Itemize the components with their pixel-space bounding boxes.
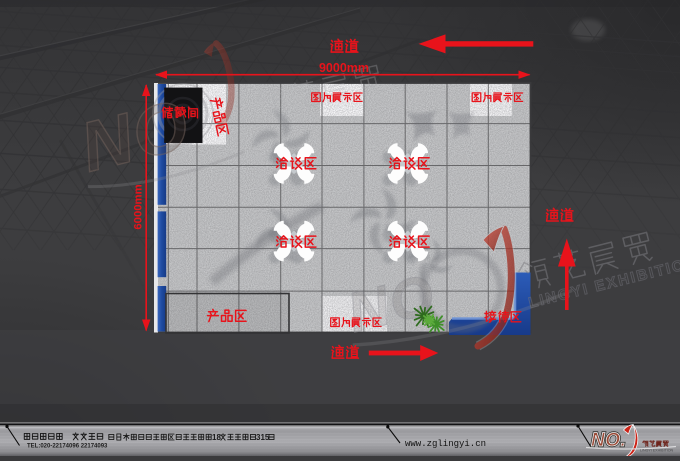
svg-text:18: 18 <box>212 433 221 442</box>
svg-text:LINGYI EXHIBITION: LINGYI EXHIBITION <box>640 449 674 453</box>
svg-text:6000mm: 6000mm <box>133 184 145 229</box>
svg-text:TEL:020-22174096 22174093: TEL:020-22174096 22174093 <box>27 444 108 450</box>
svg-text:www.zglingyi.cn: www.zglingyi.cn <box>405 439 486 449</box>
svg-text:315: 315 <box>256 433 270 442</box>
svg-text:9000mm: 9000mm <box>319 61 369 75</box>
